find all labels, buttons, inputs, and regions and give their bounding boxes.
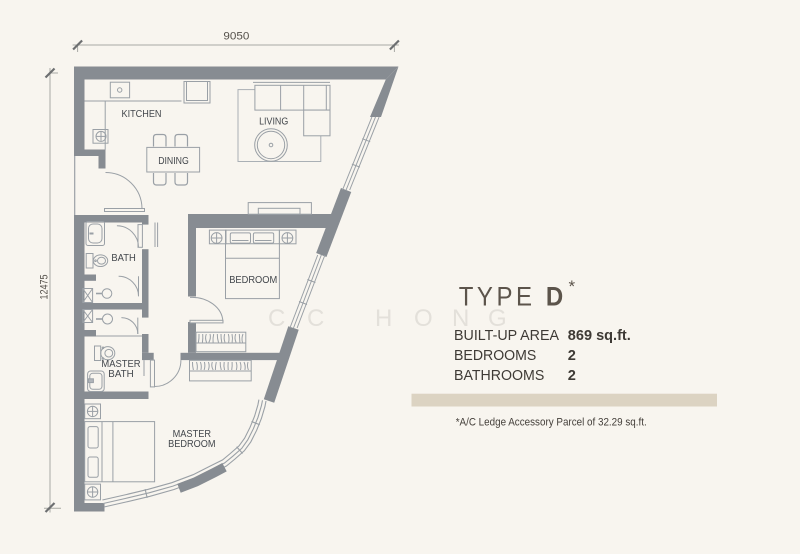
svg-text:9050: 9050 bbox=[223, 31, 249, 43]
svg-text:DINING: DINING bbox=[158, 156, 189, 167]
svg-text:KITCHEN: KITCHEN bbox=[122, 109, 162, 120]
svg-text:BEDROOMS: BEDROOMS bbox=[454, 348, 537, 364]
svg-text:12475: 12475 bbox=[39, 275, 51, 300]
svg-text:*A/C Ledge Accessory Parcel of: *A/C Ledge Accessory Parcel of 32.29 sq.… bbox=[456, 417, 647, 429]
svg-text:LIVING: LIVING bbox=[259, 117, 288, 128]
svg-text:869 sq.ft.: 869 sq.ft. bbox=[568, 328, 631, 344]
svg-text:BATHROOMS: BATHROOMS bbox=[454, 368, 545, 384]
svg-text:BEDROOM: BEDROOM bbox=[229, 275, 277, 286]
svg-text:O: O bbox=[414, 305, 433, 332]
svg-text:2: 2 bbox=[568, 348, 576, 364]
svg-text:BEDROOM: BEDROOM bbox=[168, 439, 215, 450]
svg-text:*: * bbox=[569, 277, 576, 296]
svg-text:BUILT-UP AREA: BUILT-UP AREA bbox=[454, 328, 559, 344]
svg-text:H: H bbox=[375, 305, 392, 332]
svg-text:C: C bbox=[268, 305, 285, 332]
svg-text:C: C bbox=[307, 305, 324, 332]
svg-text:BATH: BATH bbox=[111, 253, 135, 264]
svg-text:BATH: BATH bbox=[108, 369, 133, 380]
svg-text:TYPE D: TYPE D bbox=[459, 282, 567, 312]
svg-text:2: 2 bbox=[568, 368, 576, 384]
